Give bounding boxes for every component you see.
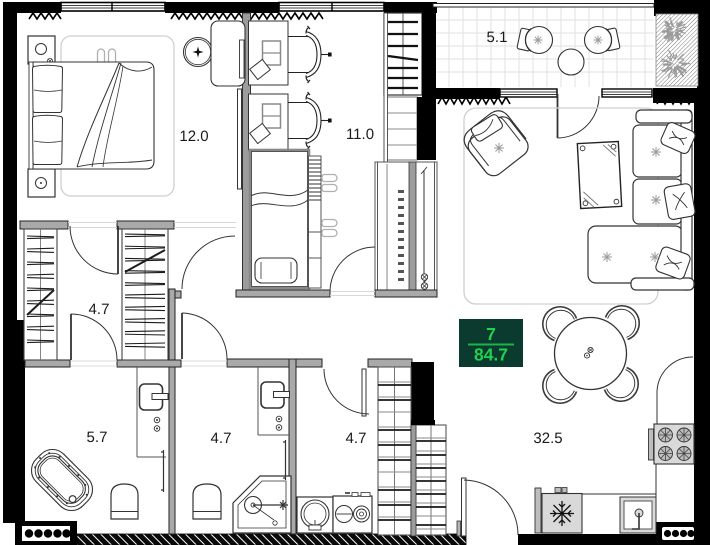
svg-text:7: 7 <box>486 324 496 344</box>
svg-text:84.7: 84.7 <box>474 344 508 364</box>
svg-text:5.7: 5.7 <box>87 429 108 446</box>
svg-text:32.5: 32.5 <box>533 430 562 447</box>
svg-text:4.7: 4.7 <box>346 430 367 447</box>
svg-text:5.1: 5.1 <box>487 29 508 46</box>
svg-text:11.0: 11.0 <box>346 126 374 143</box>
svg-text:4.7: 4.7 <box>89 301 110 318</box>
svg-text:4.7: 4.7 <box>211 430 232 447</box>
svg-text:12.0: 12.0 <box>179 128 208 145</box>
